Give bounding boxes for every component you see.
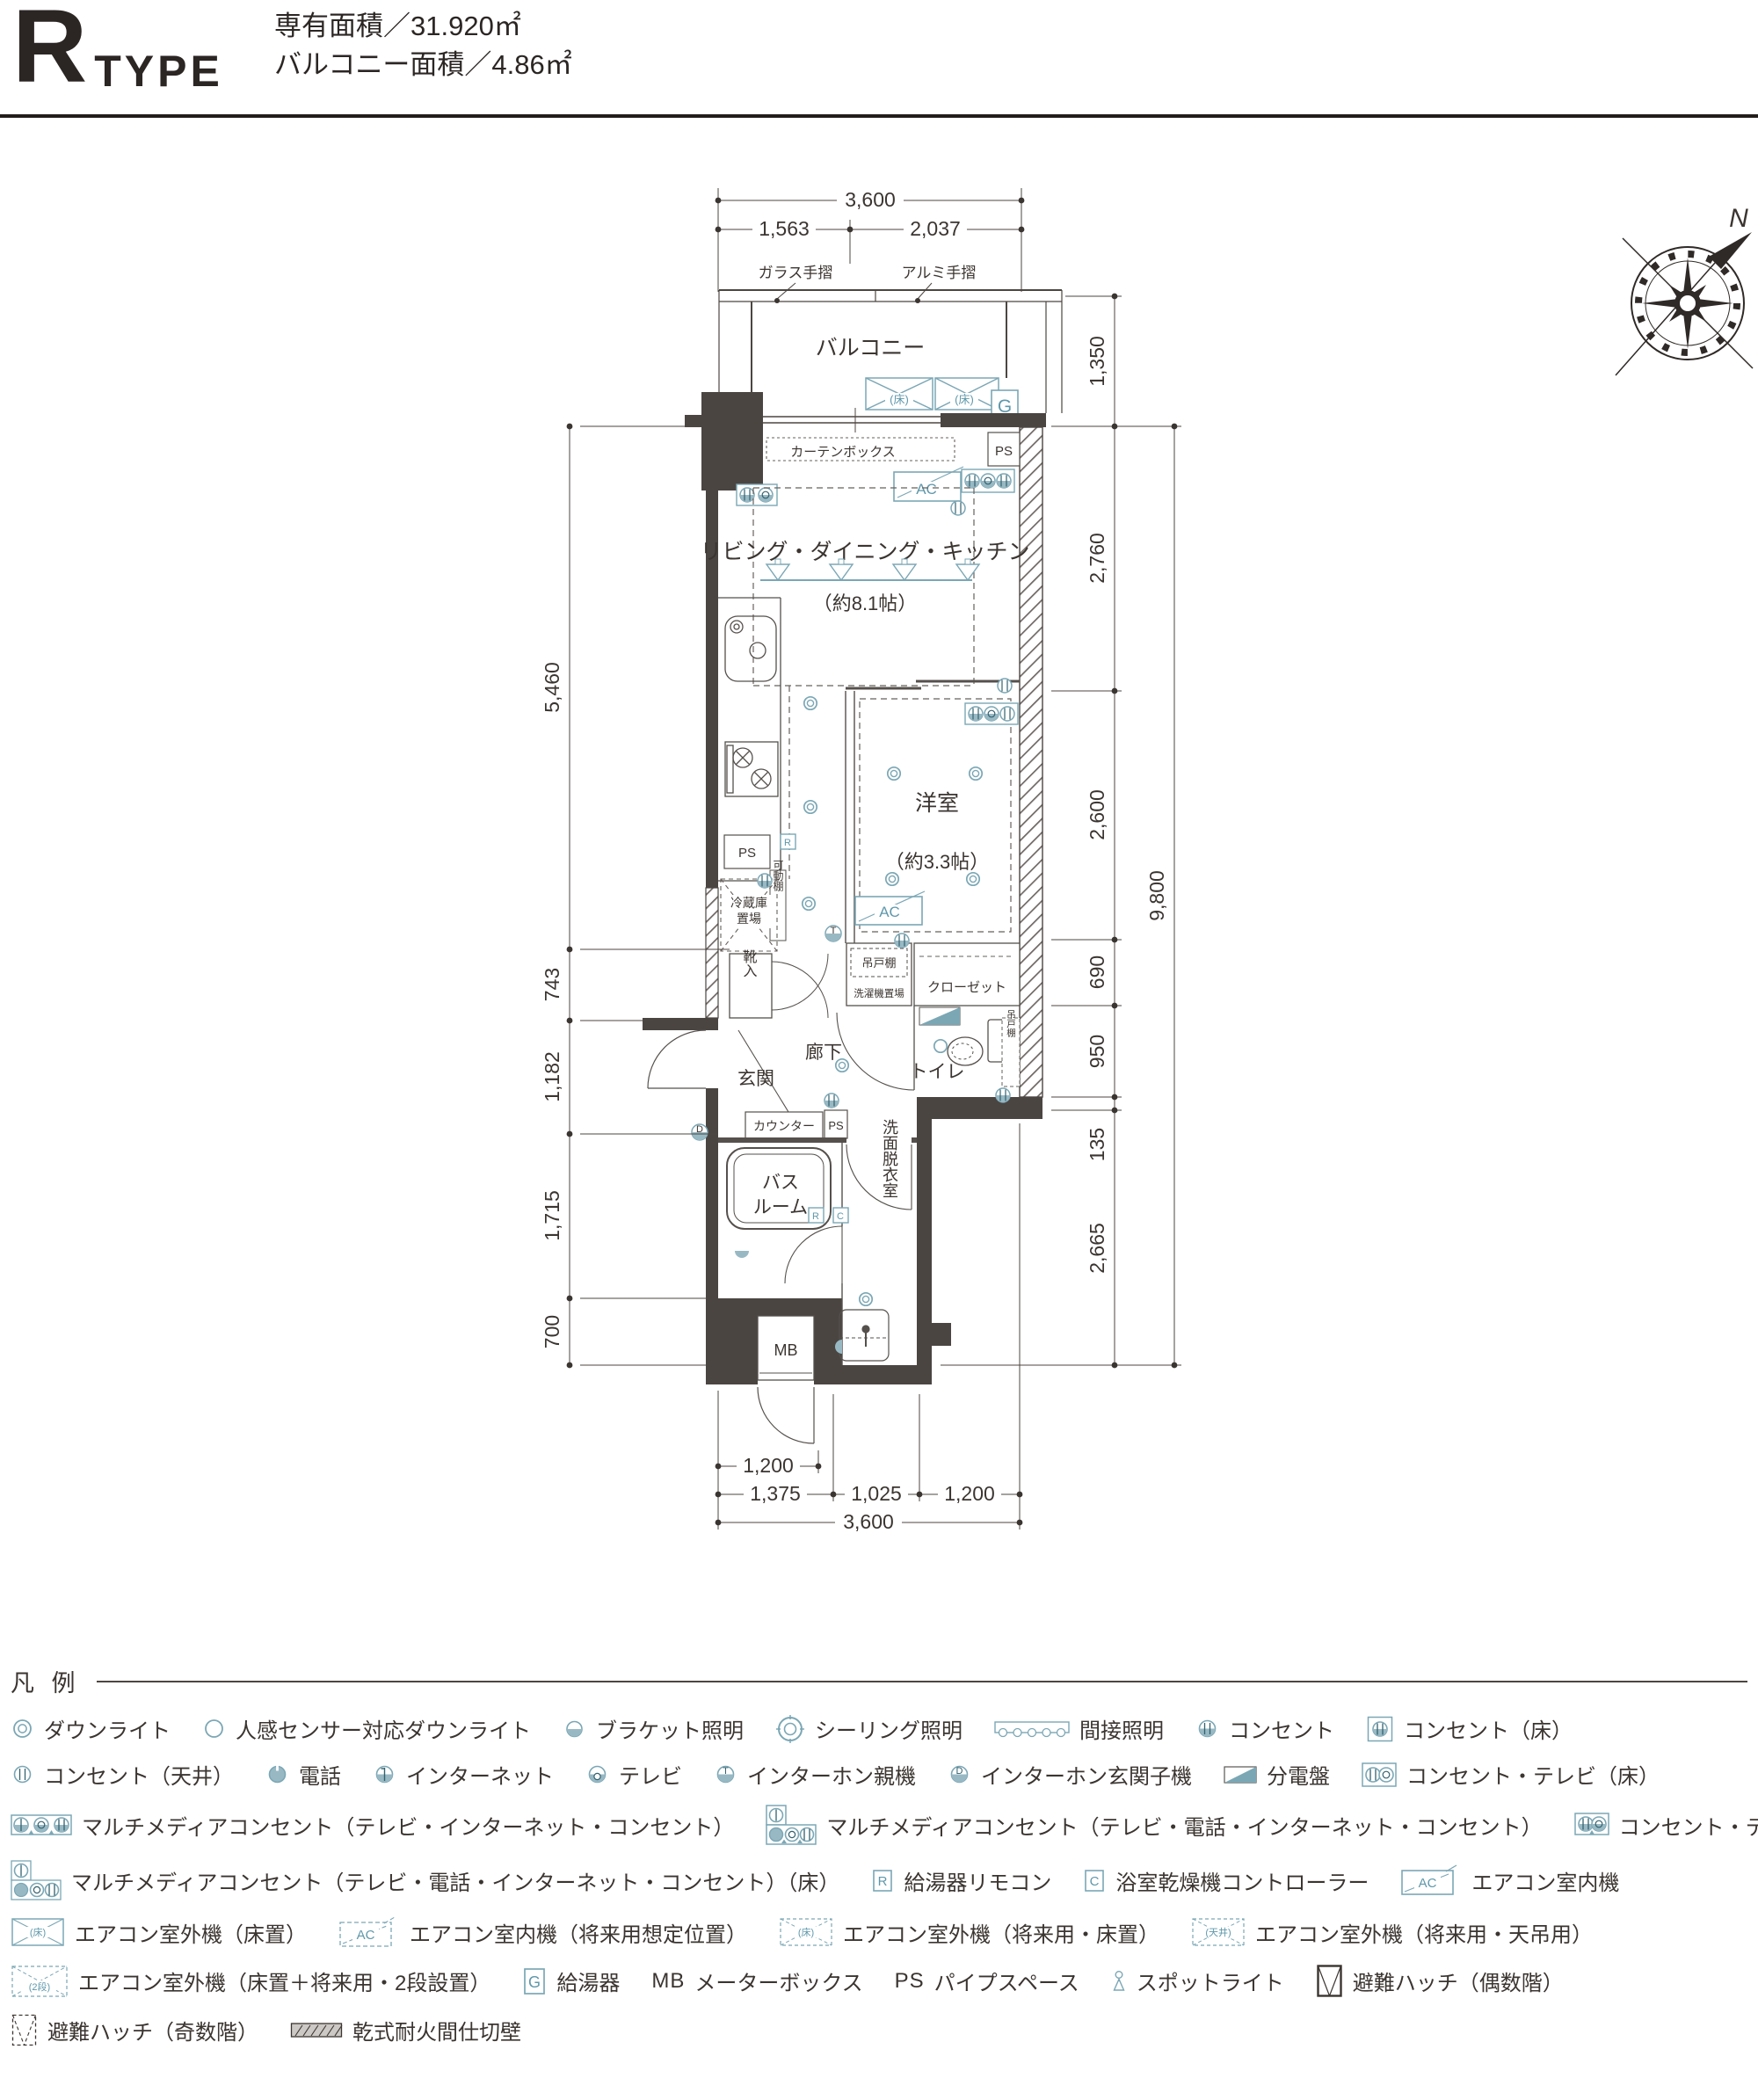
outlet-symbol xyxy=(758,874,772,888)
washstand xyxy=(839,1310,889,1361)
legend-item: ブラケット照明 xyxy=(563,1713,744,1744)
ac-outdoor-future-floor-icon: (床) xyxy=(779,1917,833,1947)
dim-right-2: 690 xyxy=(1086,956,1108,989)
svg-text:(床): (床) xyxy=(798,1926,814,1938)
legend-label: 避難ハッチ（偶数階） xyxy=(1353,1966,1564,1996)
legend-item: マルチメディアコンセント（テレビ・インターネット・コンセント） xyxy=(11,1810,734,1841)
legend-item: Tインターホン親機 xyxy=(714,1759,916,1790)
legend-item: コンセント・テレビ xyxy=(1574,1810,1758,1841)
legend-item: 乾式耐火間仕切壁 xyxy=(290,2015,521,2046)
dim-top-left: 1,563 xyxy=(759,217,810,240)
washer-label: 洗濯機置場 xyxy=(854,987,904,999)
downlight-symbol xyxy=(886,873,898,885)
legend-row: マルチメディアコンセント（テレビ・電話・インターネット・コンセント）（床）R給湯… xyxy=(11,1860,1747,1900)
r-bath-label: R xyxy=(812,1211,819,1222)
kitchen-stove xyxy=(725,742,778,796)
legend-label: 避難ハッチ（奇数階） xyxy=(47,2015,258,2046)
entrance-door xyxy=(648,1030,706,1088)
hatch-odd-icon xyxy=(11,2013,38,2047)
dimension-lines xyxy=(570,188,1181,1530)
dim-bottom-2: 1,200 xyxy=(944,1482,995,1505)
dimension-dots xyxy=(567,198,1178,1526)
mb-text-icon: MB xyxy=(651,1969,685,1994)
d-mark: D xyxy=(696,1124,703,1135)
legend-label: エアコン室外機（将来用・床置） xyxy=(843,1917,1159,1948)
closet xyxy=(914,943,1020,1006)
dim-left-1: 743 xyxy=(541,968,563,1001)
t-mark: T xyxy=(831,926,837,936)
legend-label: 人感センサー対応ダウンライト xyxy=(236,1713,531,1744)
washroom-door xyxy=(846,1144,912,1210)
legend-item: ACエアコン室内機 xyxy=(1400,1864,1619,1897)
balcony-window xyxy=(763,408,941,432)
shoe-box-label: 靴入 xyxy=(741,949,758,977)
svg-text:T: T xyxy=(723,1766,729,1777)
legend-row: (2段)エアコン室外機（床置＋将来用・2段設置）G給湯器MBメーターボックスPS… xyxy=(11,1964,1747,1998)
legend-item: スポットライト xyxy=(1111,1966,1284,1996)
legend-label: 間接照明 xyxy=(1079,1713,1164,1744)
bracket-light-symbol xyxy=(735,1251,749,1258)
spotlight-icon xyxy=(1111,1969,1127,1993)
ac-label-western: AC xyxy=(879,904,900,920)
movable-shelf-label: 可動棚 xyxy=(772,860,784,892)
leader-dot xyxy=(915,298,920,303)
ac-indoor-future-icon: AC xyxy=(338,1915,400,1949)
legend-row: (床)エアコン室外機（床置）ACエアコン室内機（将来用想定位置）(床)エアコン室… xyxy=(11,1915,1747,1949)
svg-text:AC: AC xyxy=(357,1928,375,1943)
floorplan-sheet: { "header": { "type_letter": "R", "type_… xyxy=(0,0,1758,2100)
letter-box-lg-icon: G xyxy=(522,1966,547,1996)
legend-label: 乾式耐火間仕切壁 xyxy=(352,2015,521,2046)
sensor-downlight-symbol xyxy=(934,1040,947,1052)
legend-label: エアコン室外機（将来用・天吊用） xyxy=(1255,1917,1593,1948)
letter-box-icon: C xyxy=(1083,1867,1106,1893)
legend-label: エアコン室外機（床置） xyxy=(75,1917,307,1948)
downlight-symbol xyxy=(803,897,815,910)
legend-label: 浴室乾燥機コントローラー xyxy=(1115,1865,1369,1896)
legend: 凡 例 ダウンライト人感センサー対応ダウンライトブラケット照明シーリング照明間接… xyxy=(11,1664,1747,2047)
legend-title-rule xyxy=(97,1681,1747,1682)
dim-left-2: 1,182 xyxy=(541,1051,563,1102)
entrance-label: 玄関 xyxy=(737,1069,774,1089)
ps-kitchen-label: PS xyxy=(738,846,756,861)
alumi-rail-label: アルミ手摺 xyxy=(902,265,977,281)
legend-item: コンセント xyxy=(1195,1713,1334,1744)
c-bath-label: C xyxy=(837,1211,844,1222)
internet-outlet-symbol xyxy=(1000,707,1014,721)
legend-row: 避難ハッチ（奇数階）乾式耐火間仕切壁 xyxy=(11,2013,1747,2047)
legend-item: シーリング照明 xyxy=(775,1713,963,1744)
downlight-symbol xyxy=(860,1293,872,1305)
multimedia-4-floor-icon xyxy=(11,1860,62,1900)
svg-text:G: G xyxy=(528,1973,541,1991)
firewall-icon xyxy=(290,2020,343,2040)
legend-item: ダウンライト xyxy=(11,1713,171,1744)
dim-right-5: 2,665 xyxy=(1086,1223,1108,1274)
dim-bottom-door: 1,200 xyxy=(743,1454,794,1477)
legend-label: マルチメディアコンセント（テレビ・電話・インターネット・コンセント） xyxy=(826,1810,1542,1841)
legend-item: インターネット xyxy=(373,1759,554,1790)
svg-text:AC: AC xyxy=(1419,1876,1437,1891)
downlight-symbol xyxy=(804,697,817,709)
multimedia-4-icon xyxy=(766,1805,817,1845)
ac-label-ldk: AC xyxy=(916,481,937,498)
tv-outlet-symbol xyxy=(759,488,773,502)
legend-item: ACエアコン室内機（将来用想定位置） xyxy=(338,1915,747,1949)
hatch-even-icon xyxy=(1316,1964,1343,1998)
outlet-symbol xyxy=(996,1088,1010,1102)
dim-bottom-0: 1,375 xyxy=(750,1482,801,1505)
downlight-symbol xyxy=(970,767,982,780)
intercom-icon: D xyxy=(948,1762,971,1786)
legend-item: コンセント・テレビ（床） xyxy=(1362,1759,1660,1790)
legend-label: シーリング照明 xyxy=(815,1713,963,1744)
outlet-icon xyxy=(1195,1717,1219,1740)
leader-dot xyxy=(774,298,780,303)
firewall-left xyxy=(706,888,718,1018)
dim-right-3: 950 xyxy=(1086,1035,1108,1068)
dim-top-total: 3,600 xyxy=(845,188,896,211)
legend-label: ダウンライト xyxy=(44,1713,171,1744)
corridor-label: 廊下 xyxy=(805,1043,842,1063)
dim-right-0: 2,760 xyxy=(1086,533,1108,584)
legend-item: (床)エアコン室外機（床置） xyxy=(11,1917,307,1948)
legend-item: マルチメディアコンセント（テレビ・電話・インターネット・コンセント）（床） xyxy=(11,1860,839,1900)
mb-label: MB xyxy=(774,1341,798,1359)
ac-floor-mark-1: (床) xyxy=(890,393,909,406)
western-room-size: （約3.3帖） xyxy=(885,851,990,873)
intercom-icon: T xyxy=(714,1762,737,1786)
fridge-label-1: 冷蔵庫 xyxy=(730,896,767,910)
outlet-floor-icon xyxy=(1366,1715,1394,1743)
downlight-symbol xyxy=(967,873,979,885)
fridge-label-2: 置場 xyxy=(737,912,761,926)
legend-item: (2段)エアコン室外機（床置＋将来用・2段設置） xyxy=(11,1965,490,1998)
dim-right-balcony: 1,350 xyxy=(1086,336,1108,387)
firewall-right xyxy=(1020,427,1042,1097)
legend-item: 避難ハッチ（奇数階） xyxy=(11,2013,258,2047)
letter-box-icon: R xyxy=(871,1867,894,1893)
legend-item: 分電盤 xyxy=(1224,1759,1330,1790)
ac-outdoor-floor-icon: (床) xyxy=(11,1917,65,1947)
svg-text:(2段): (2段) xyxy=(29,1980,50,1993)
legend-item: コンセント（天井） xyxy=(11,1759,234,1790)
legend-item: R給湯器リモコン xyxy=(871,1865,1051,1896)
legend-label: エアコン室外機（床置＋将来用・2段設置） xyxy=(78,1966,490,1996)
dim-right-4: 135 xyxy=(1086,1128,1108,1161)
ps-top-label: PS xyxy=(995,444,1013,459)
washroom-label: 洗面脱衣室 xyxy=(881,1119,898,1198)
western-room-label: 洋室 xyxy=(915,791,959,816)
sensor-downlight-icon xyxy=(202,1717,226,1740)
legend-item: (床)エアコン室外機（将来用・床置） xyxy=(779,1917,1159,1948)
legend-row: マルチメディアコンセント（テレビ・インターネット・コンセント）マルチメディアコン… xyxy=(11,1805,1747,1845)
legend-label: エアコン室内機 xyxy=(1471,1865,1619,1896)
bracket-light-icon xyxy=(563,1717,586,1740)
dim-left-3: 1,715 xyxy=(541,1190,563,1241)
hanging-shelf-label: 吊戸棚 xyxy=(861,956,896,970)
legend-item: 避難ハッチ（偶数階） xyxy=(1316,1964,1564,1998)
compass-rose: N xyxy=(1616,204,1753,375)
outlet-tv-floor-icon xyxy=(1362,1762,1397,1788)
legend-label: インターネット xyxy=(406,1759,554,1790)
legend-label: テレビ xyxy=(619,1759,682,1790)
legend-title: 凡 例 xyxy=(11,1664,81,1698)
ac-floor-mark-2: (床) xyxy=(955,393,974,406)
toilet-label: トイレ xyxy=(910,1062,965,1082)
legend-item: C浴室乾燥機コントローラー xyxy=(1083,1865,1369,1896)
dim-right-1: 2,600 xyxy=(1086,789,1108,840)
ps-text-icon: PS xyxy=(895,1969,925,1994)
ldk-size-label: （約8.1帖） xyxy=(813,592,918,614)
bath-door xyxy=(785,1226,842,1283)
curtain-box-label: カーテンボックス xyxy=(790,445,896,460)
ac-indoor-icon: AC xyxy=(1400,1864,1462,1897)
legend-label: エアコン室内機（将来用想定位置） xyxy=(410,1917,747,1948)
tv-outlet-symbol xyxy=(981,474,995,488)
tv-outlet-symbol xyxy=(984,707,999,721)
legend-label: インターホン親機 xyxy=(747,1759,916,1790)
unit-entry-door xyxy=(758,1373,814,1443)
ceiling-light-icon xyxy=(775,1714,805,1744)
multimedia-3-icon xyxy=(11,1812,72,1838)
legend-row: ダウンライト人感センサー対応ダウンライトブラケット照明シーリング照明間接照明コン… xyxy=(11,1713,1747,1744)
outlet-symbol xyxy=(969,707,983,721)
legend-label: コンセント・テレビ xyxy=(1619,1810,1758,1841)
legend-item: 電話 xyxy=(265,1759,341,1790)
legend-title-row: 凡 例 xyxy=(11,1664,1747,1698)
outlet-symbol xyxy=(965,474,979,488)
dim-top-right: 2,037 xyxy=(910,217,961,240)
legend-item: テレビ xyxy=(585,1759,682,1790)
balcony-label: バルコニー xyxy=(816,336,926,360)
internet-icon xyxy=(373,1762,396,1786)
internet-outlet-symbol xyxy=(951,501,965,515)
bathroom-label-2: ルーム xyxy=(753,1197,808,1217)
shoe-box-doors xyxy=(772,954,828,1018)
svg-text:D: D xyxy=(956,1766,963,1777)
legend-label: コンセント（床） xyxy=(1404,1713,1573,1744)
legend-label: 電話 xyxy=(299,1759,341,1790)
svg-text:C: C xyxy=(1090,1874,1100,1889)
legend-label: インターホン玄関子機 xyxy=(981,1759,1192,1790)
legend-item: コンセント（床） xyxy=(1366,1713,1573,1744)
svg-text:(天井): (天井) xyxy=(1205,1926,1231,1938)
compass-north-label: N xyxy=(1729,204,1748,233)
legend-item: MBメーターボックス xyxy=(651,1966,862,1996)
downlight-icon xyxy=(11,1717,34,1740)
legend-label: パイプスペース xyxy=(934,1966,1079,1996)
ac-outdoor-future-ceiling-icon: (天井) xyxy=(1191,1917,1246,1947)
legend-label: 分電盤 xyxy=(1267,1759,1330,1790)
tv-icon xyxy=(585,1762,609,1786)
legend-item: 人感センサー対応ダウンライト xyxy=(202,1713,531,1744)
indirect-light-icon xyxy=(994,1719,1070,1740)
legend-label: スポットライト xyxy=(1137,1966,1284,1996)
legend-item: Dインターホン玄関子機 xyxy=(948,1759,1192,1790)
dim-left-4: 700 xyxy=(541,1315,563,1348)
bathroom-label-1: バス xyxy=(762,1173,799,1193)
distribution-board-icon xyxy=(1224,1766,1257,1784)
legend-item: 間接照明 xyxy=(994,1713,1164,1744)
glass-rail-label: ガラス手摺 xyxy=(759,265,833,281)
outlet-symbol xyxy=(740,488,754,502)
dim-bottom-total: 3,600 xyxy=(843,1510,894,1533)
closet-label: クローゼット xyxy=(927,980,1006,995)
ldk-label: リビング・ダイニング・キッチン xyxy=(700,540,1029,564)
downlight-symbol xyxy=(804,801,817,813)
downlight-symbol xyxy=(888,767,900,780)
outlet-symbol xyxy=(998,679,1012,693)
legend-label: コンセント（天井） xyxy=(44,1759,234,1790)
dim-right-total: 9,800 xyxy=(1145,870,1168,921)
counter-label: カウンター xyxy=(753,1119,815,1133)
legend-item: G給湯器 xyxy=(522,1966,620,1996)
toilet-hanging-label: 吊戸棚 xyxy=(1006,1009,1016,1037)
outlet-tv-icon xyxy=(1574,1811,1609,1839)
legend-label: マルチメディアコンセント（テレビ・インターネット・コンセント） xyxy=(82,1810,734,1841)
legend-label: メーターボックス xyxy=(694,1966,862,1996)
multimedia-outlet-western xyxy=(965,703,1018,724)
legend-label: コンセント xyxy=(1229,1713,1334,1744)
kitchen-sink xyxy=(725,616,776,681)
legend-item: (天井)エアコン室外機（将来用・天吊用） xyxy=(1191,1917,1593,1948)
svg-text:(床): (床) xyxy=(30,1926,46,1938)
legend-item: PSパイプスペース xyxy=(895,1966,1079,1996)
legend-label: マルチメディアコンセント（テレビ・電話・インターネット・コンセント）（床） xyxy=(71,1865,839,1896)
svg-text:R: R xyxy=(878,1874,888,1889)
distribution-board-symbol xyxy=(919,1007,960,1025)
dim-bottom-1: 1,025 xyxy=(851,1482,902,1505)
outlet-symbol xyxy=(997,474,1011,488)
legend-label: 給湯器リモコン xyxy=(904,1865,1051,1896)
legend-rows: ダウンライト人感センサー対応ダウンライトブラケット照明シーリング照明間接照明コン… xyxy=(11,1713,1747,2047)
legend-label: 給湯器 xyxy=(556,1966,620,1996)
outlet-symbol xyxy=(825,1094,839,1108)
legend-item: マルチメディアコンセント（テレビ・電話・インターネット・コンセント） xyxy=(766,1805,1542,1845)
outlet-ceiling-icon xyxy=(11,1762,34,1786)
legend-label: コンセント・テレビ（床） xyxy=(1406,1759,1660,1790)
legend-row: コンセント（天井）電話インターネットテレビTインターホン親機Dインターホン玄関子… xyxy=(11,1759,1747,1790)
legend-label: ブラケット照明 xyxy=(596,1713,744,1744)
r-kitchen-label: R xyxy=(784,838,791,848)
phone-icon xyxy=(265,1762,289,1786)
dim-left-0: 5,460 xyxy=(541,662,563,713)
ps-counter-label: PS xyxy=(828,1119,844,1132)
ac-outdoor-2dan-icon: (2段) xyxy=(11,1965,69,1998)
outlet-symbol xyxy=(895,934,909,948)
